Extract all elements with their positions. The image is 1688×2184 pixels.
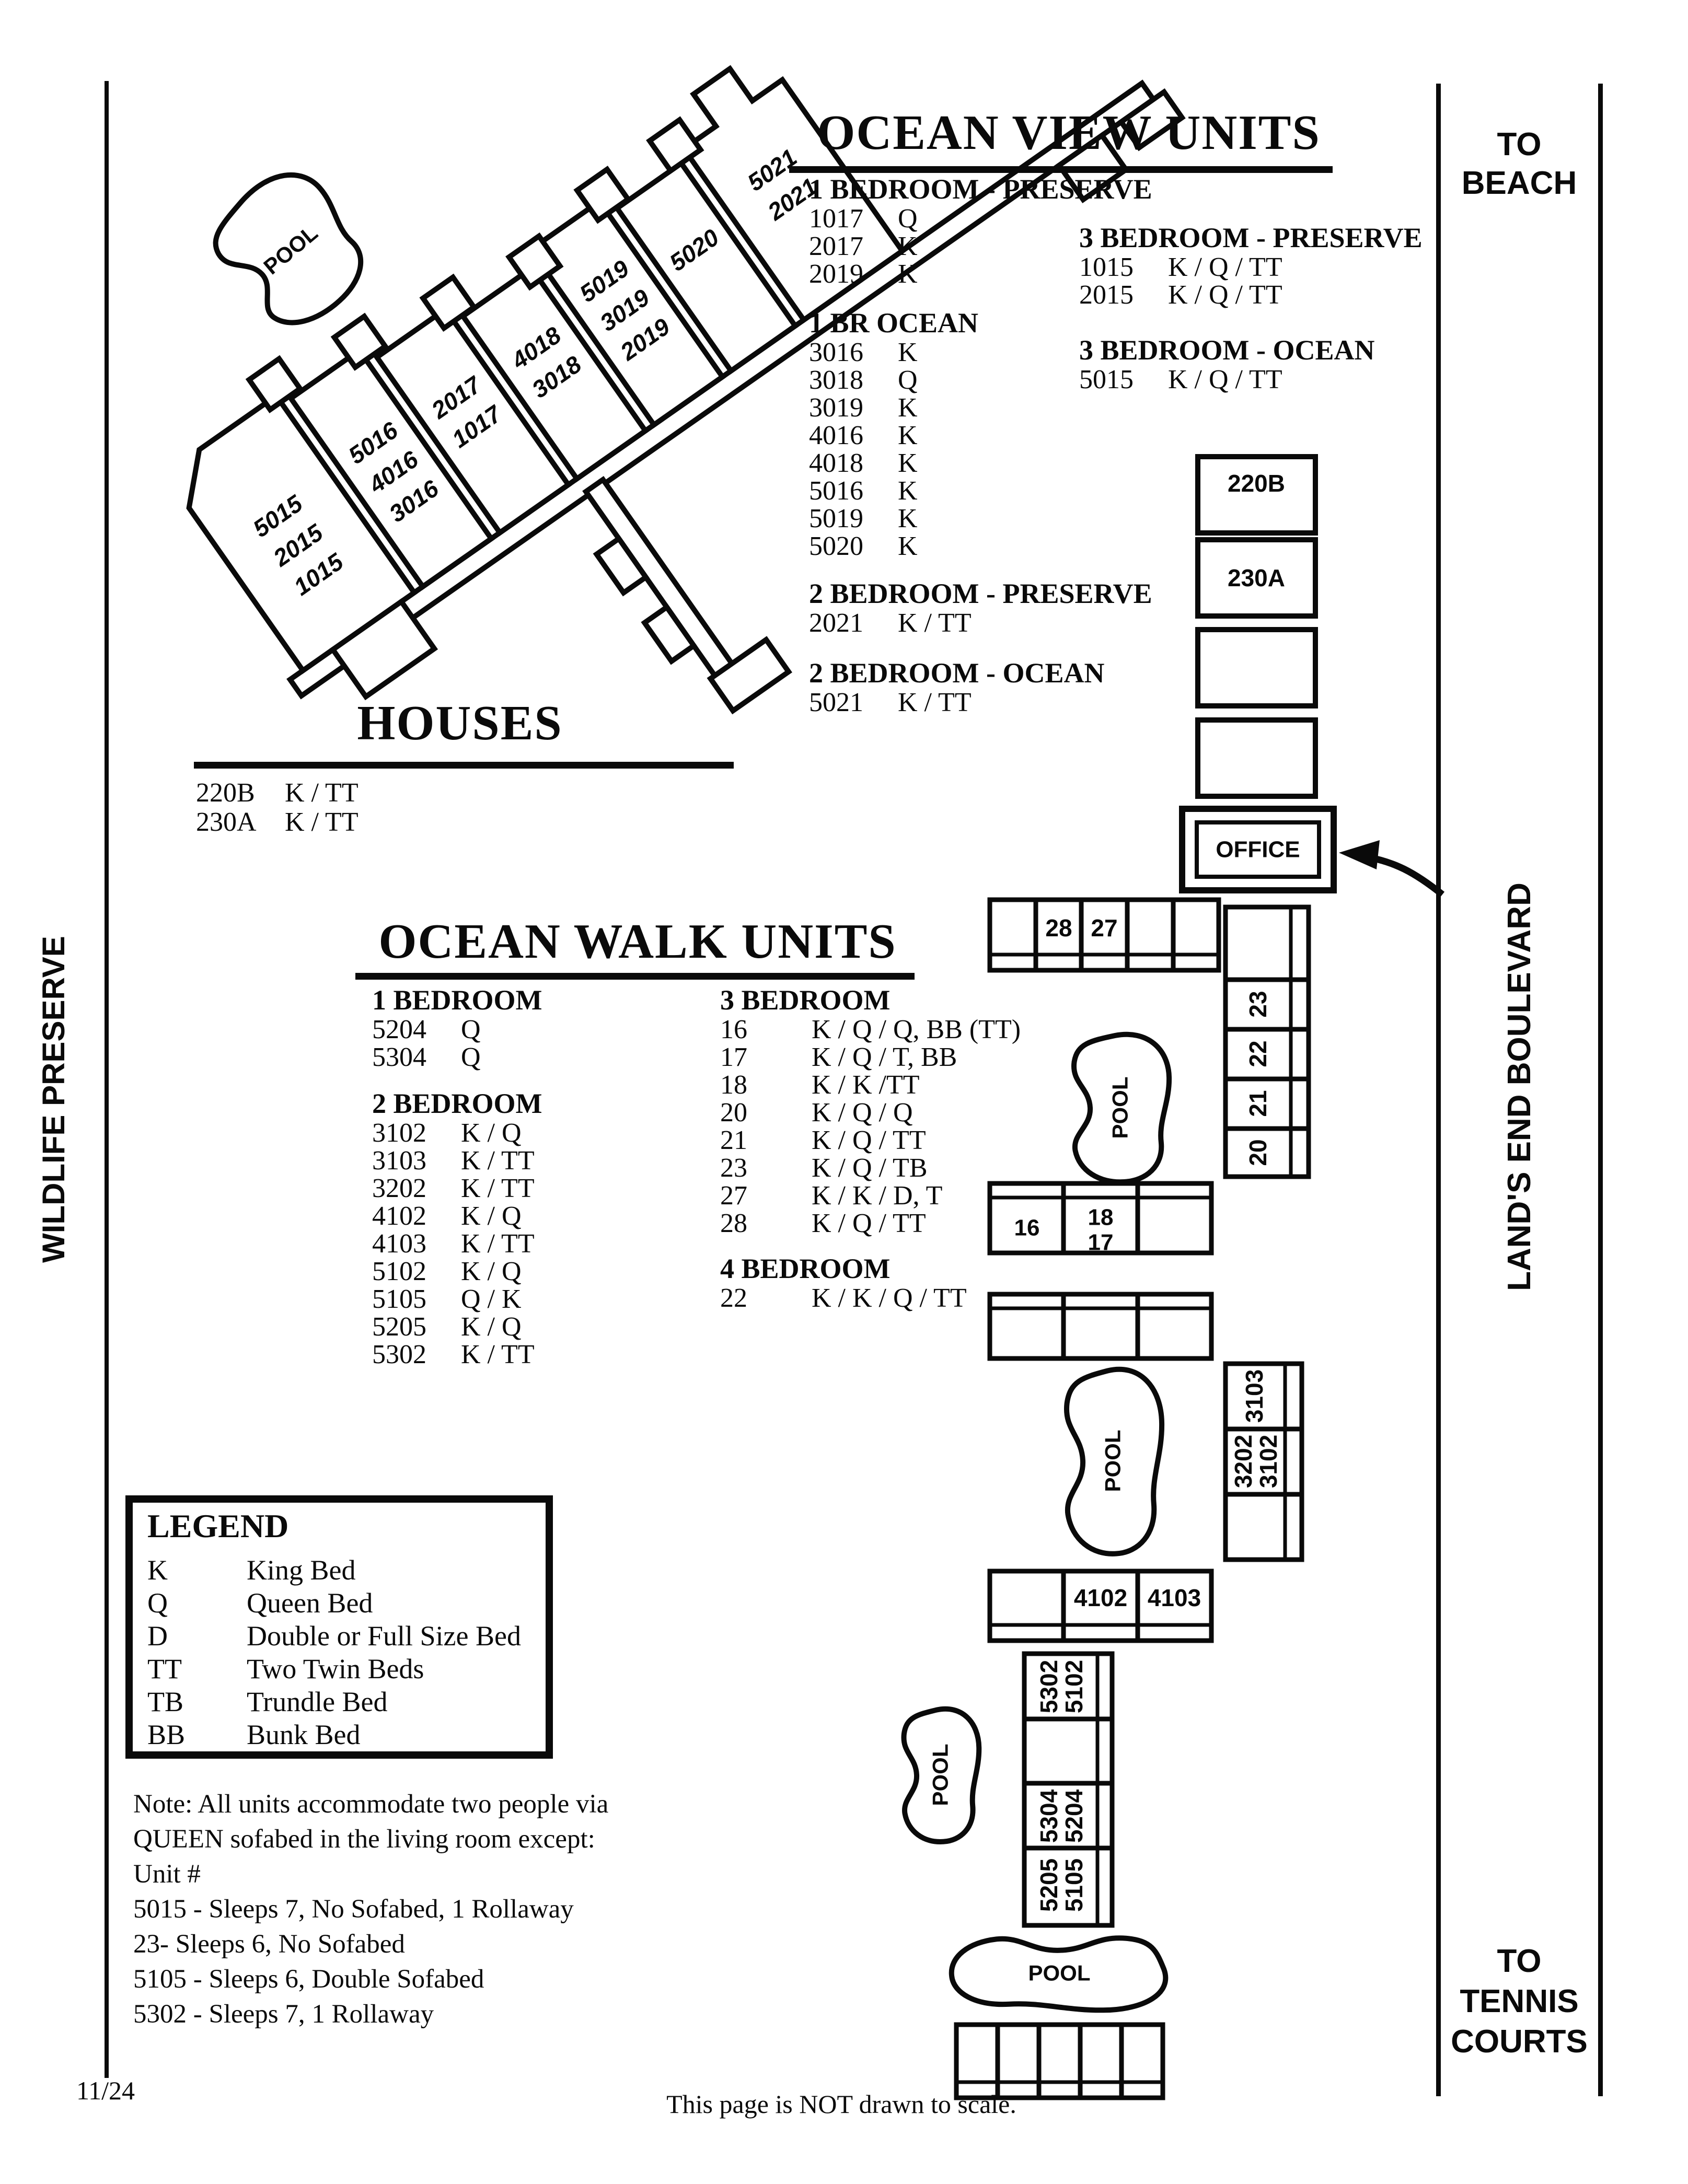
unit-beds: K / Q / TB [812,1153,928,1183]
unit-row: 4103K / TT [372,1230,542,1258]
group-heading: 3 BEDROOM [720,984,1021,1016]
unit-row: 5016K [809,477,978,505]
legend-desc: Queen Bed [247,1587,373,1619]
unit-beds: K / Q / TT [812,1209,926,1238]
note-line: 5015 - Sleeps 7, No Sofabed, 1 Rollaway [133,1892,608,1927]
unit-row: 3019K [809,394,978,422]
group-heading: 1 BEDROOM - PRESERVE [809,173,1152,205]
pool-label: POOL [1028,1961,1090,1985]
unit-row: 21K / Q / TT [720,1126,1021,1154]
unit-beds: K / Q / Q [812,1098,913,1128]
unit-number: 16 [720,1016,812,1043]
legend-desc: Double or Full Size Bed [247,1620,521,1652]
ocean-walk-underline [355,973,915,980]
unit-17-label: 17 [1088,1230,1114,1256]
unit-beds: K / Q [461,1118,522,1148]
to-tennis-line: TENNIS [1441,1981,1598,2022]
unit-27-label: 27 [1091,914,1117,942]
group-heading: 3 BEDROOM - OCEAN [1079,334,1375,366]
unit-beds: K / K / Q / TT [812,1283,967,1313]
road-left-line [1436,84,1441,2096]
unit-row: 2021K / TT [809,609,1152,637]
unit-row: 230AK / TT [196,808,359,837]
unit-number: 18 [720,1071,812,1099]
unit-20-label: 20 [1244,1139,1271,1166]
unit-beds: K [898,531,918,561]
note-line: 5105 - Sleeps 6, Double Sofabed [133,1962,608,1997]
unit-row: 5304Q [372,1043,542,1071]
unit-row: 5205K / Q [372,1313,542,1341]
group-heading: 2 BEDROOM - PRESERVE [809,578,1152,609]
unit-row: 27K / K / D, T [720,1182,1021,1210]
unit-number: 4016 [809,422,898,449]
unit-18-label: 18 [1088,1205,1114,1230]
unit-row: 2015K / Q / TT [1079,281,1423,309]
office-arrow [1367,857,1442,894]
unit-number: 3018 [809,366,898,394]
unit-row: 3202K / TT [372,1175,542,1202]
unit-beds: K / TT [461,1340,535,1369]
unit-row: 5204Q [372,1016,542,1043]
unit-4102-label: 4102 [1074,1584,1127,1611]
legend-row: TBTrundle Bed [147,1686,521,1718]
unit-number: 230A [196,808,285,837]
unit-row: 20K / Q / Q [720,1099,1021,1126]
ocean-view-group-3br-preserve: 3 BEDROOM - PRESERVE 1015K / Q / TT 2015… [1079,222,1423,309]
unit-number: 1015 [1079,253,1168,281]
pool-label: POOL [928,1744,953,1806]
unit-row: 3016K [809,339,978,366]
building-bottom-row [956,2025,1163,2098]
unit-beds: K / TT [285,778,359,808]
unit-number: 2021 [809,609,898,637]
legend-title: LEGEND [147,1508,288,1544]
unit-row: 1015K / Q / TT [1079,253,1423,281]
footer-caption: This page is NOT drawn to scale. [627,2089,1056,2119]
unit-beds: K / Q [461,1257,522,1286]
unit-beds: K / Q [461,1312,522,1342]
unit-beds: K / TT [461,1229,535,1259]
unit-number: 5304 [372,1043,461,1071]
note-line: Note: All units accommodate two people v… [133,1787,608,1822]
to-tennis-line: TO [1441,1941,1598,1981]
group-heading: 2 BEDROOM [372,1088,542,1119]
unit-3103-label: 3103 [1241,1369,1268,1423]
legend-key: TT [147,1653,247,1686]
unit-beds: K / TT [461,1146,535,1176]
unit-5105-label: 5105 [1060,1858,1088,1912]
unit-number: 23 [720,1154,812,1182]
ocean-view-group-1br-ocean: 1 BR OCEAN 3016K 3018Q 3019K 4016K 4018K… [809,307,978,560]
ocean-view-group-3br-ocean: 3 BEDROOM - OCEAN 5015K / Q / TT [1079,334,1375,393]
unit-row: 4016K [809,422,978,449]
legend-key: K [147,1554,247,1587]
unit-beds: Q [461,1015,481,1044]
to-beach-line: BEACH [1441,164,1598,203]
unit-21-label: 21 [1244,1090,1271,1117]
note-line: 5302 - Sleeps 7, 1 Rollaway [133,1997,608,2032]
note-line: 23- Sleeps 6, No Sofabed [133,1927,608,1962]
ocean-walk-group-1br: 1 BEDROOM 5204Q 5304Q [372,984,542,1071]
note-line: QUEEN sofabed in the living room except: [133,1822,608,1857]
unit-row: 18K / K /TT [720,1071,1021,1099]
unit-beds: K / TT [461,1174,535,1203]
unit-number: 5015 [1079,366,1168,393]
unit-number: 27 [720,1182,812,1210]
legend-row: DDouble or Full Size Bed [147,1620,521,1653]
unit-row: 5021K / TT [809,689,1105,716]
unit-row: 5102K / Q [372,1258,542,1285]
unit-number: 5105 [372,1285,461,1313]
group-heading: 3 BEDROOM - PRESERVE [1079,222,1423,253]
unit-beds: K / Q / T, BB [812,1042,957,1072]
legend-desc: King Bed [247,1554,356,1586]
unit-number: 5020 [809,532,898,560]
wildlife-preserve-label: WILDLIFE PRESERVE [36,838,72,1361]
legend-desc: Bunk Bed [247,1719,361,1750]
unit-number: 1017 [809,205,898,233]
footer-date: 11/24 [76,2075,135,2106]
unit-number: 4103 [372,1230,461,1258]
ocean-walk-group-2br: 2 BEDROOM 3102K / Q 3103K / TT 3202K / T… [372,1088,542,1368]
unit-beds: K / Q / Q, BB (TT) [812,1015,1021,1044]
unit-row: 22K / K / Q / TT [720,1284,967,1312]
unit-number: 5021 [809,689,898,716]
unit-5204-label: 5204 [1060,1789,1088,1843]
unit-number: 2019 [809,260,898,288]
unit-row: 5015K / Q / TT [1079,366,1375,393]
unit-5102-label: 5102 [1060,1660,1088,1713]
unit-5304-label: 5304 [1035,1789,1062,1843]
unit-beds: K / TT [898,688,972,717]
unit-beds: K / Q / TT [812,1125,926,1155]
unit-number: 5205 [372,1313,461,1341]
legend-desc: Trundle Bed [247,1686,388,1717]
house-box-empty [1198,720,1315,796]
note-line: Unit # [133,1857,608,1892]
group-heading: 2 BEDROOM - OCEAN [809,657,1105,689]
unit-beds: Q / K [461,1284,522,1314]
legend-key: Q [147,1587,247,1620]
building-unlabeled-row [990,1294,1211,1358]
unit-number: 220B [196,779,285,808]
unit-row: 5105Q / K [372,1285,542,1313]
unit-3102-label: 3102 [1255,1435,1282,1488]
unit-row: 23K / Q / TB [720,1154,1021,1182]
unit-beds: K [898,259,918,289]
unit-22-label: 22 [1244,1040,1271,1067]
unit-beds: K / TT [285,807,359,837]
group-heading: 4 BEDROOM [720,1253,967,1284]
unit-beds: K / K /TT [812,1070,920,1100]
preserve-border-line [105,81,109,2078]
ocean-view-title: OCEAN VIEW UNITS [800,104,1338,161]
unit-number: 3019 [809,394,898,422]
legend-row: QQueen Bed [147,1587,521,1620]
houses-title: HOUSES [314,695,606,751]
legend-key: TB [147,1686,247,1718]
unit-beds: Q [898,204,918,234]
unit-number: 3103 [372,1147,461,1175]
unit-number: 4018 [809,449,898,477]
unit-number: 20 [720,1099,812,1126]
unit-row: 5302K / TT [372,1341,542,1368]
to-beach-label: TO BEACH [1441,125,1598,203]
unit-beds: K / Q [461,1201,522,1231]
unit-beds: K [898,231,918,261]
unit-row: 220BK / TT [196,779,359,808]
unit-beds: K / Q / TT [1168,365,1282,394]
unit-4103-label: 4103 [1148,1584,1201,1611]
legend-desc: Two Twin Beds [247,1653,424,1685]
unit-number: 21 [720,1126,812,1154]
road-right-line [1598,84,1603,2096]
house-box-220b-label: 220B [1228,470,1285,497]
ocean-view-group-2br-preserve: 2 BEDROOM - PRESERVE 2021K / TT [809,578,1152,637]
house-box-230a-label: 230A [1228,564,1285,591]
house-box-empty [1198,630,1315,706]
houses-underline [194,762,734,769]
unit-number: 3102 [372,1119,461,1147]
unit-beds: K / Q / TT [1168,280,1282,310]
unit-row: 5019K [809,505,978,532]
unit-number: 5204 [372,1016,461,1043]
to-tennis-line: COURTS [1441,2022,1598,2062]
unit-row: 17K / Q / T, BB [720,1043,1021,1071]
unit-beds: K / Q / TT [1168,252,1282,282]
unit-number: 4102 [372,1202,461,1230]
office-label: OFFICE [1216,837,1300,863]
unit-beds: Q [461,1042,481,1072]
unit-number: 17 [720,1043,812,1071]
unit-row: 3018Q [809,366,978,394]
unit-number: 5102 [372,1258,461,1285]
unit-number: 5019 [809,505,898,532]
unit-number: 3016 [809,339,898,366]
houses-list: 220BK / TT 230AK / TT [196,779,359,837]
unit-number: 2015 [1079,281,1168,309]
boulevard-label: LAND'S END BOULEVARD [1500,826,1540,1348]
legend-entries: KKing Bed QQueen Bed DDouble or Full Siz… [147,1554,521,1751]
unit-number: 5016 [809,477,898,505]
unit-beds: Q [898,365,918,395]
unit-row: 3102K / Q [372,1119,542,1147]
resort-map-page: 5015 2015 1015 5016 4016 3016 2017 1017 … [0,0,1688,2184]
legend-box: LEGEND KKing Bed QQueen Bed DDouble or F… [125,1495,553,1759]
legend-row: TTTwo Twin Beds [147,1653,521,1686]
unit-beds: K [898,504,918,533]
ocean-walk-group-4br: 4 BEDROOM 22K / K / Q / TT [720,1253,967,1312]
to-beach-line: TO [1441,125,1598,164]
unit-row: 16K / Q / Q, BB (TT) [720,1016,1021,1043]
unit-beds: K [898,393,918,423]
office-arrow-head [1339,840,1380,869]
to-tennis-label: TO TENNIS COURTS [1441,1941,1598,2062]
unit-number: 5302 [372,1341,461,1368]
unit-beds: K [898,448,918,478]
legend-key: BB [147,1718,247,1751]
pool-label: POOL [1101,1430,1125,1492]
ocean-walk-title: OCEAN WALK UNITS [361,913,915,970]
ocean-view-underline [789,166,1333,173]
group-heading: 1 BR OCEAN [809,307,978,339]
unit-row: 4018K [809,449,978,477]
ocean-view-group-2br-ocean: 2 BEDROOM - OCEAN 5021K / TT [809,657,1105,716]
unit-row: 4102K / Q [372,1202,542,1230]
legend-row: KKing Bed [147,1554,521,1587]
unit-number: 28 [720,1210,812,1237]
unit-number: 22 [720,1284,812,1312]
unit-23-label: 23 [1244,991,1271,1017]
group-heading: 1 BEDROOM [372,984,542,1016]
unit-row: 28K / Q / TT [720,1210,1021,1237]
unit-beds: K [898,476,918,506]
note-block: Note: All units accommodate two people v… [133,1787,608,2032]
unit-5302-label: 5302 [1035,1660,1062,1713]
pool-label: POOL [1108,1076,1132,1139]
unit-row: 5020K [809,532,978,560]
unit-beds: K [898,421,918,450]
unit-3202-label: 3202 [1230,1435,1257,1488]
unit-number: 3202 [372,1175,461,1202]
unit-row: 3103K / TT [372,1147,542,1175]
ocean-walk-group-3br: 3 BEDROOM 16K / Q / Q, BB (TT) 17K / Q /… [720,984,1021,1237]
unit-beds: K / K / D, T [812,1181,942,1211]
legend-key: D [147,1620,247,1653]
unit-number: 2017 [809,233,898,260]
unit-beds: K [898,338,918,367]
unit-5205-label: 5205 [1035,1858,1062,1912]
unit-beds: K / TT [898,608,972,638]
legend-row: BBBunk Bed [147,1718,521,1751]
unit-28-label: 28 [1045,914,1072,942]
